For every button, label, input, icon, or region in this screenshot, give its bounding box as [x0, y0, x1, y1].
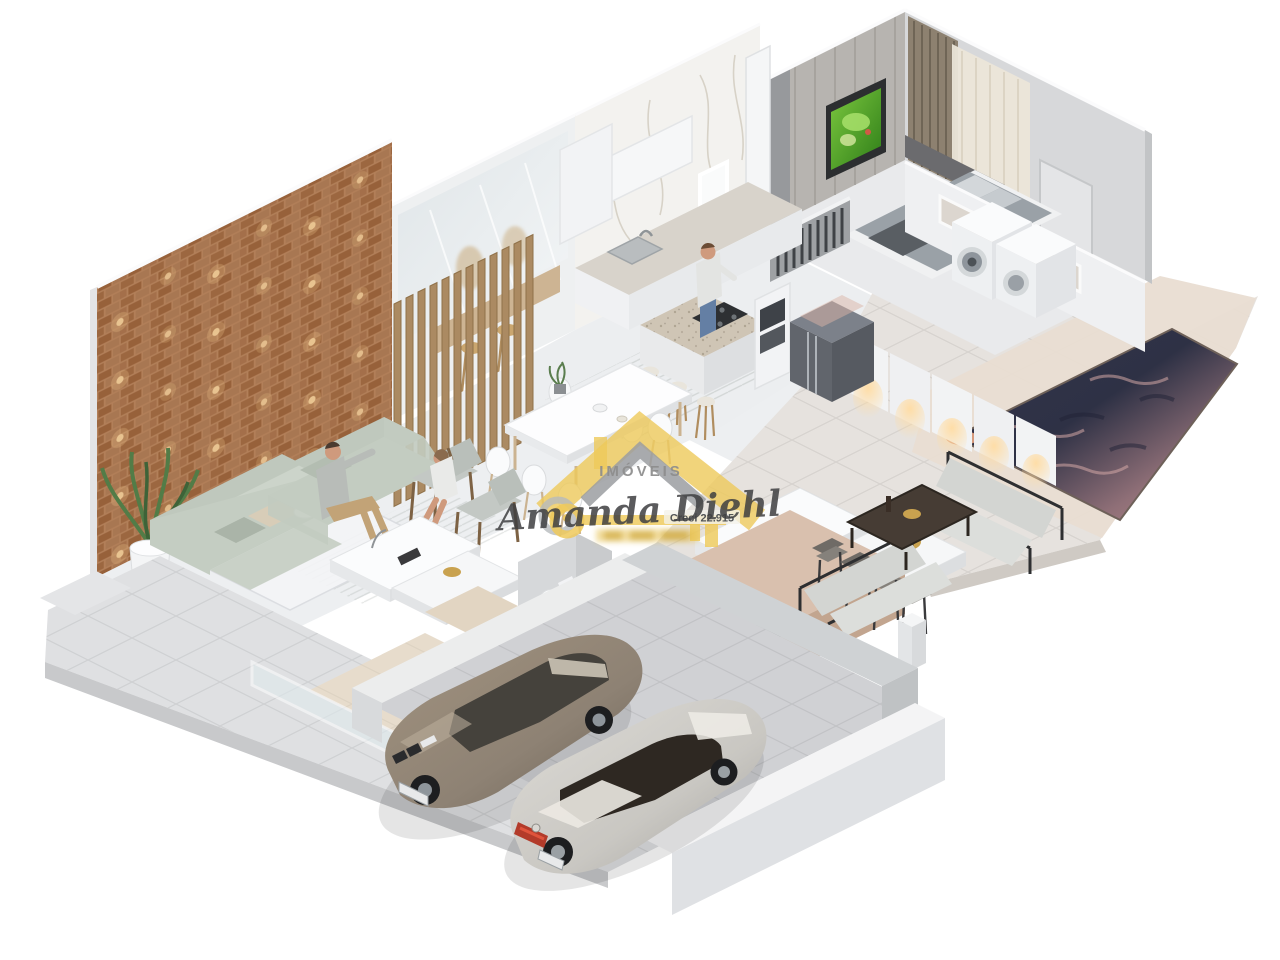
wall-end-edge — [90, 287, 97, 581]
oven-tower — [755, 283, 790, 389]
blurred-tagline — [596, 529, 698, 542]
mercedes-emblem — [532, 824, 540, 832]
decor-bowl — [443, 567, 461, 577]
isometric-floorplan: IMÓVEIS Creci 22.915 Amanda Diehl — [0, 0, 1280, 960]
tray — [903, 509, 921, 519]
wall-end-edge — [1145, 130, 1152, 284]
wine-bottle — [886, 496, 891, 512]
floorplan-render-page: IMÓVEIS Creci 22.915 Amanda Diehl — [0, 0, 1280, 960]
brand-top-text: IMÓVEIS — [599, 462, 683, 480]
dryer — [996, 224, 1076, 318]
